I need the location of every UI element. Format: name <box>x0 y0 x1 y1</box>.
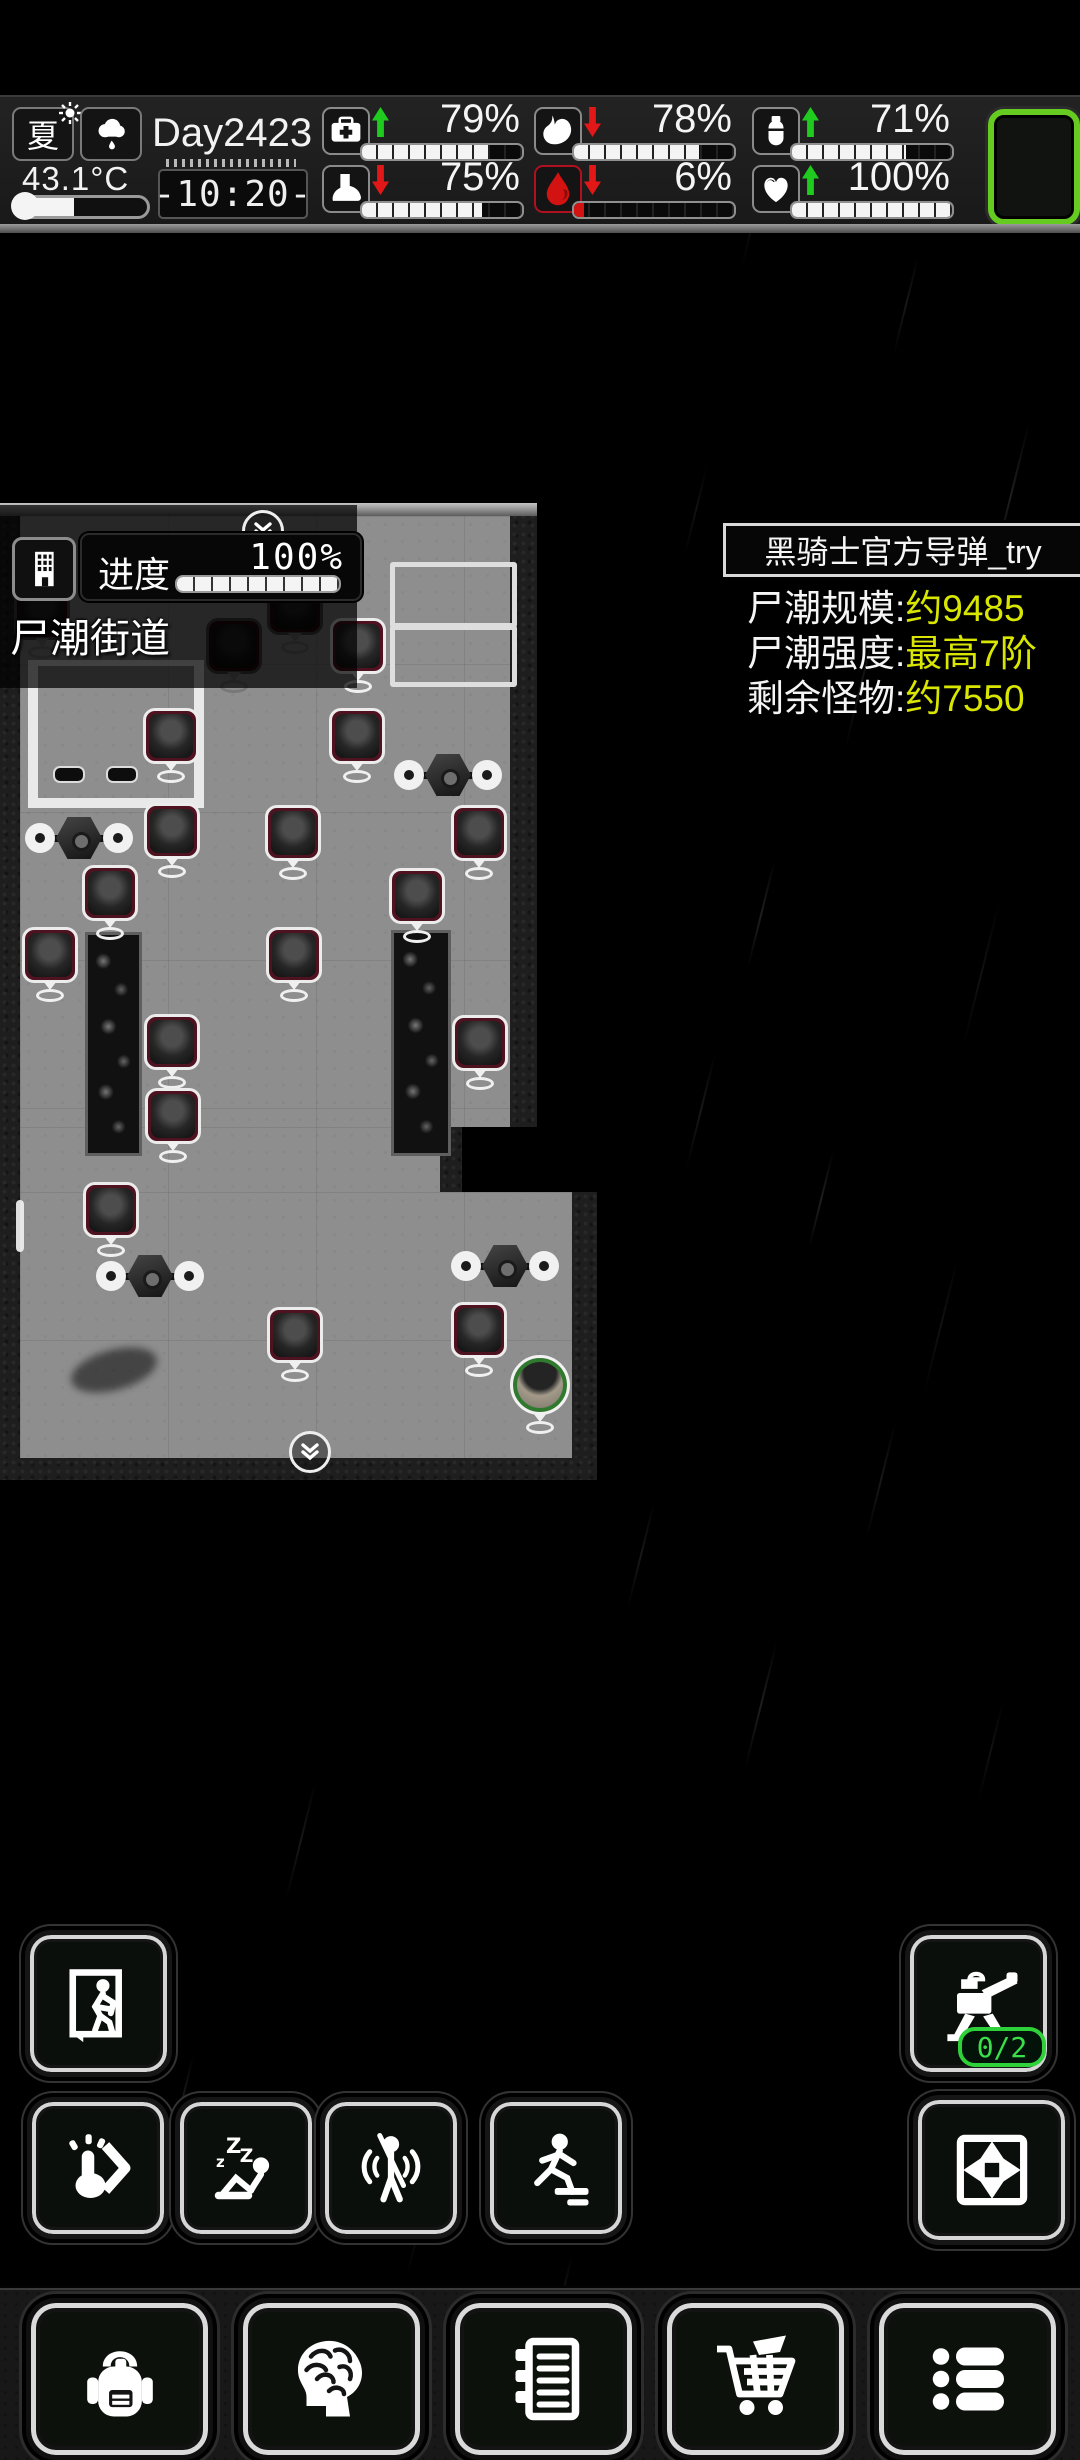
zombie-tile[interactable] <box>83 1182 139 1238</box>
brain-head-icon <box>284 2331 380 2427</box>
backpack-icon <box>70 2329 170 2429</box>
progress-bar <box>175 575 341 593</box>
thermometer-bulb <box>11 192 39 220</box>
vital-bar-fill <box>792 203 952 217</box>
zone-outline <box>390 625 517 687</box>
list-menu-icon <box>920 2331 1016 2427</box>
skip-action-button[interactable] <box>27 2097 169 2239</box>
wave-info-label: 剩余怪物: <box>747 678 905 719</box>
make-noise-button[interactable] <box>320 2097 462 2239</box>
day-progress-ticks <box>166 159 296 167</box>
zombie-tile[interactable] <box>265 805 321 861</box>
progress-label: 进度 <box>98 546 170 598</box>
svg-text:Z: Z <box>240 2146 254 2167</box>
barricade-gate[interactable] <box>25 816 133 860</box>
wave-info-value: 约7550 <box>905 678 1024 719</box>
wave-title: 黑骑士官方导弹_try <box>764 527 1041 573</box>
vital-value: 78% <box>572 97 732 142</box>
day-counter: Day2423 <box>152 111 312 156</box>
move-compass-button[interactable] <box>913 2095 1070 2245</box>
unit-marker <box>342 761 372 783</box>
season-button[interactable]: 夏 <box>12 107 74 161</box>
gate-wheel <box>25 823 55 853</box>
temperature-value: 43.1°C <box>22 160 129 198</box>
thermometer-gauge <box>12 195 150 219</box>
zombie-tile[interactable] <box>82 865 138 921</box>
turret-count-badge: 0/2 <box>958 2027 1046 2067</box>
unit-marker <box>35 980 65 1002</box>
vital-value: 6% <box>572 155 732 200</box>
progress-value: 100% <box>249 537 344 578</box>
unit-marker <box>464 858 494 880</box>
unit-marker <box>465 1068 495 1090</box>
sleep-icon: ZzZ <box>206 2128 286 2208</box>
gate-wheel <box>394 760 424 790</box>
vitals-grid: 79% 78% 71% <box>322 103 987 219</box>
noise-alert-icon <box>351 2128 431 2208</box>
run-action-button[interactable] <box>485 2097 627 2239</box>
vital-value: 71% <box>790 97 950 142</box>
clock-display[interactable]: -10:20- <box>158 169 308 219</box>
zombie-tile[interactable] <box>451 805 507 861</box>
vital-value: 79% <box>360 97 520 142</box>
zombie-tile[interactable] <box>267 1307 323 1363</box>
unit-marker <box>280 1360 310 1382</box>
unit-marker <box>157 1067 187 1089</box>
zombie-tile[interactable] <box>145 1088 201 1144</box>
zone-outline <box>390 562 517 628</box>
barricade-gate[interactable] <box>394 753 502 797</box>
gate-wheel <box>103 823 133 853</box>
journal-button[interactable] <box>450 2298 637 2460</box>
gate-wheel <box>472 760 502 790</box>
wave-title-box: 黑骑士官方导弹_try <box>723 523 1080 577</box>
rain-cloud-icon <box>88 113 134 155</box>
season-label: 夏 <box>27 111 59 157</box>
zombie-tile[interactable] <box>266 927 322 983</box>
vital-stat: 79% <box>322 103 534 161</box>
unit-marker <box>402 921 432 943</box>
vital-bar <box>360 201 524 219</box>
scroll-more-icon[interactable] <box>289 1431 331 1473</box>
zombie-tile[interactable] <box>143 708 199 764</box>
vital-stat: 100% <box>752 161 987 219</box>
weather-button[interactable] <box>80 107 142 161</box>
unit-marker <box>464 1355 494 1377</box>
shopping-cart-icon <box>708 2331 804 2427</box>
unit-marker <box>158 1141 188 1163</box>
location-name: 尸潮街道 <box>10 606 170 664</box>
bench-marker <box>53 766 85 783</box>
game-screen: { "status_bar": { "season": "夏", "temper… <box>0 0 1080 2460</box>
inventory-button[interactable] <box>26 2298 213 2460</box>
gate-wheel <box>174 1261 204 1291</box>
journal-icon <box>496 2331 592 2427</box>
vital-stat: 78% <box>534 103 752 161</box>
run-downstairs-icon <box>516 2128 596 2208</box>
map-border-gravel <box>572 1192 597 1462</box>
barricade-gate[interactable] <box>451 1244 559 1288</box>
zombie-tile[interactable] <box>144 803 200 859</box>
status-bar: 夏 43.1°C Day2423 -10:20- 79% <box>0 95 1080 224</box>
zombie-tile[interactable] <box>451 1302 507 1358</box>
sun-icon <box>58 101 82 125</box>
wave-info-line: 剩余怪物:约7550 <box>747 668 1025 722</box>
planter-obstacle <box>391 930 451 1156</box>
unit-marker <box>156 761 186 783</box>
gate-wheel <box>451 1251 481 1281</box>
zombie-tile[interactable] <box>329 708 385 764</box>
unit-marker <box>279 980 309 1002</box>
exit-door-icon <box>57 1962 141 2046</box>
zombie-tile[interactable] <box>144 1014 200 1070</box>
map-ground[interactable] <box>20 1127 440 1192</box>
tap-forward-icon <box>58 2128 138 2208</box>
vital-stat: 75% <box>322 161 534 219</box>
wave-progress-panel: 进度 100% <box>80 533 362 601</box>
exit-map-button[interactable] <box>25 1930 172 2077</box>
skills-mind-button[interactable] <box>238 2298 425 2460</box>
menu-list-button[interactable] <box>874 2298 1061 2460</box>
zombie-tile[interactable] <box>452 1015 508 1071</box>
phone-device-button[interactable] <box>988 109 1080 225</box>
unit-marker <box>278 858 308 880</box>
vital-bar-fill <box>362 203 482 217</box>
compass-arrows-icon <box>946 2124 1038 2216</box>
vital-value: 75% <box>360 155 520 200</box>
bench-marker <box>106 766 138 783</box>
zombie-tile[interactable] <box>389 868 445 924</box>
zombie-tile[interactable] <box>22 927 78 983</box>
vital-stat: 71% <box>752 103 987 161</box>
player-avatar[interactable] <box>510 1355 570 1415</box>
unit-marker <box>96 1235 126 1257</box>
gate-wheel <box>96 1261 126 1291</box>
unit-marker <box>157 856 187 878</box>
building-info-button[interactable] <box>12 537 76 601</box>
gate-wheel <box>529 1251 559 1281</box>
vital-bar <box>572 201 736 219</box>
unit-marker <box>525 1412 555 1434</box>
vital-bar-fill <box>574 203 584 217</box>
vital-bar <box>790 201 954 219</box>
vital-stat: 6% <box>534 161 752 219</box>
shop-button[interactable] <box>662 2298 849 2460</box>
sleep-action-button[interactable]: ZzZ <box>175 2097 317 2239</box>
turret-deploy-button[interactable]: 0/2 <box>905 1930 1052 2077</box>
planter-obstacle <box>85 932 142 1156</box>
vital-value: 100% <box>790 155 950 200</box>
unit-marker <box>95 918 125 940</box>
barricade-gate[interactable] <box>96 1254 204 1298</box>
building-icon <box>22 547 66 591</box>
svg-text:z: z <box>216 2153 225 2171</box>
map-scrollbar[interactable] <box>16 1200 24 1252</box>
